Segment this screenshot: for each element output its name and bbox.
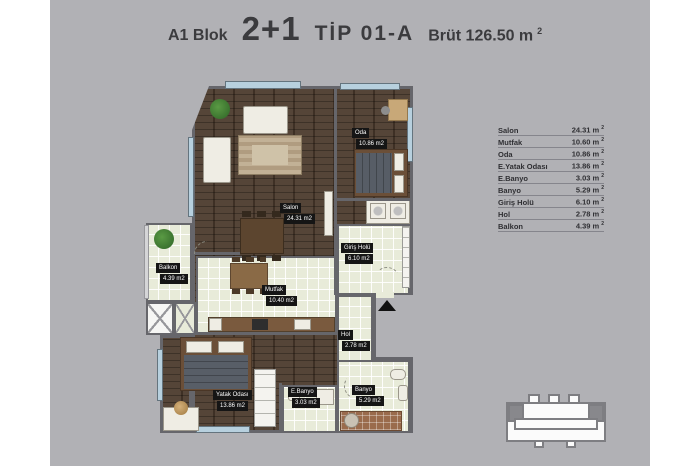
dining-chairs-top: [242, 211, 282, 217]
balcony-rail: [144, 225, 149, 299]
plant-icon: [210, 99, 230, 119]
area-legend: Salon24.31 m2 Mutfak10.60 m2 Oda10.86 m2…: [498, 124, 604, 232]
pot-plant-icon: [174, 401, 188, 415]
room-label-mutfak: Mutfak10.40 m2: [262, 285, 297, 306]
salon-window: [225, 81, 301, 89]
legend-row-giris: Giriş Holü6.10 m2: [498, 196, 604, 208]
pillow-master: [186, 341, 212, 353]
salon-side-window: [188, 137, 194, 217]
legend-row-oda: Oda10.86 m2: [498, 148, 604, 160]
legend-row-salon: Salon24.31 m2: [498, 124, 604, 136]
room-label-e-banyo: E.Banyo3.03 m2: [288, 387, 320, 408]
bedroom-side-window: [157, 349, 163, 401]
desk-chair: [381, 106, 390, 115]
tv-cabinet: [324, 191, 333, 236]
room-label-banyo: Banyo5.29 m2: [352, 385, 384, 406]
floor-plan: Salon24.31 m2 Oda10.86 m2 Mutfak10.40 m2…: [148, 73, 428, 438]
title-tip: TİP 01-A: [315, 22, 415, 46]
fridge: [209, 318, 222, 331]
title-gross-area: Brüt 126.50 m2: [428, 26, 542, 45]
keyplan-notch: [566, 440, 576, 448]
entrance-door-gap: [376, 292, 394, 298]
kitchen-chairs-bottom: [232, 289, 266, 294]
desk: [388, 99, 408, 121]
title-block: A1 Blok: [168, 27, 228, 45]
oda-window: [340, 83, 400, 90]
washer-icon: [370, 203, 386, 219]
bed-master-blanket: [184, 355, 248, 389]
pillow-master-2: [218, 341, 244, 353]
bedroom-window: [196, 426, 250, 433]
room-label-balkon: Balkon4.39 m2: [156, 263, 188, 284]
pillow-2: [394, 175, 404, 193]
stove: [252, 319, 268, 330]
stair-shaft: [174, 302, 196, 335]
legend-row-mutfak: Mutfak10.60 m2: [498, 136, 604, 148]
page-title: A1 Blok 2+1 TİP 01-A Brüt 126.50 m2: [168, 10, 542, 48]
page: A1 Blok 2+1 TİP 01-A Brüt 126.50 m2 Salo…: [0, 0, 700, 466]
wardrobe: [402, 226, 410, 288]
wall-bedroom-bath: [279, 383, 282, 433]
room-label-giris-holu: Giriş Holü6.10 m2: [341, 243, 373, 264]
dryer-icon: [390, 203, 406, 219]
superscript-2: 2: [537, 26, 542, 36]
wall-oda-bottom: [335, 198, 413, 201]
kitchen-counter: [208, 317, 335, 332]
room-label-salon: Salon24.31 m2: [280, 203, 315, 224]
room-label-oda: Oda10.86 m2: [352, 128, 387, 149]
sofa-2: [203, 137, 231, 183]
pillow: [394, 153, 404, 171]
bath-sink-icon: [398, 385, 408, 401]
shower-drain-icon: [344, 413, 359, 428]
wall-kitchen-bottom: [196, 332, 337, 335]
wall-salon-oda: [334, 86, 337, 295]
legend-row-banyo: Banyo5.29 m2: [498, 184, 604, 196]
sink: [294, 319, 311, 330]
building-key-plan: [506, 394, 606, 452]
legend-row-hol: Hol2.78 m2: [498, 208, 604, 220]
sofa: [243, 106, 288, 134]
legend-row-balkon: Balkon4.39 m2: [498, 220, 604, 232]
rug-center: [252, 145, 288, 165]
legend-row-ebanyo: E.Banyo3.03 m2: [498, 172, 604, 184]
bed-oda-blanket: [356, 153, 392, 193]
title-plan-type: 2+1: [242, 10, 301, 48]
balcony-plant-icon: [154, 229, 174, 249]
elevator-shaft: [146, 302, 174, 335]
closet: [254, 369, 276, 427]
keyplan-notch: [534, 440, 544, 448]
entrance-arrow-icon: [378, 300, 396, 311]
kitchen-chairs-top: [232, 257, 266, 262]
legend-row-eyatak: E.Yatak Odası13.86 m2: [498, 160, 604, 172]
dining-table: [240, 218, 284, 254]
toilet-icon: [390, 369, 406, 380]
room-label-yatak-odasi: Yatak Odası13.86 m2: [213, 390, 252, 411]
room-label-hol: Hol2.78 m2: [338, 330, 370, 351]
keyplan-core-band: [514, 418, 598, 430]
